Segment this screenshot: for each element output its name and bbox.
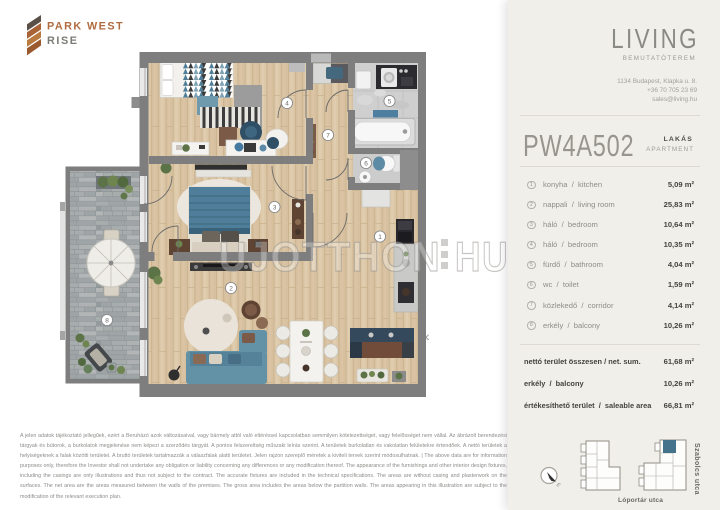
svg-text:5: 5 <box>388 98 392 105</box>
svg-text:Szabolcs utca: Szabolcs utca <box>693 443 700 495</box>
svg-text:2: 2 <box>229 285 233 292</box>
svg-text:É: É <box>555 481 563 489</box>
svg-text:4: 4 <box>285 100 289 107</box>
svg-text:3: 3 <box>273 204 277 211</box>
svg-text:Lóportár utca: Lóportár utca <box>618 497 663 504</box>
svg-text:8: 8 <box>105 317 109 324</box>
svg-text:7: 7 <box>326 132 330 139</box>
svg-text:6: 6 <box>364 160 368 167</box>
